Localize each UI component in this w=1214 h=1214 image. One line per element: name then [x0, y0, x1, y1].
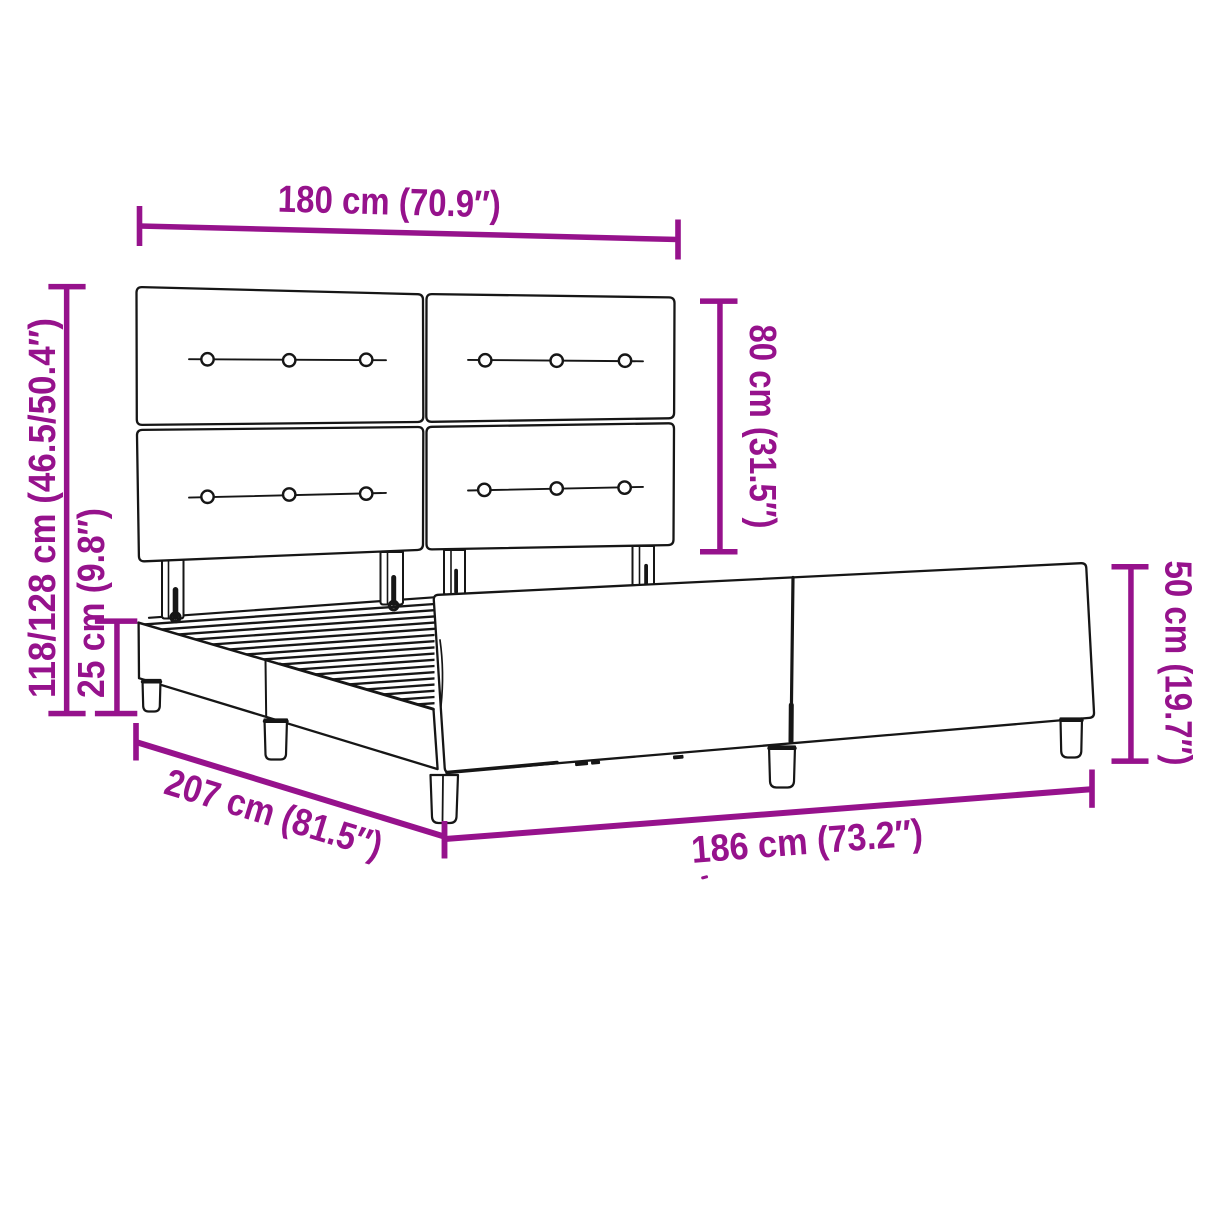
svg-text:50 cm (19.7″): 50 cm (19.7″): [1157, 561, 1199, 766]
svg-text:118/128 cm (46.5/50.4″): 118/128 cm (46.5/50.4″): [22, 318, 64, 698]
svg-text:80 cm (31.5″): 80 cm (31.5″): [741, 325, 783, 529]
svg-text:180 cm (70.9″): 180 cm (70.9″): [277, 179, 501, 227]
svg-text:25 cm (9.8″): 25 cm (9.8″): [71, 508, 113, 698]
